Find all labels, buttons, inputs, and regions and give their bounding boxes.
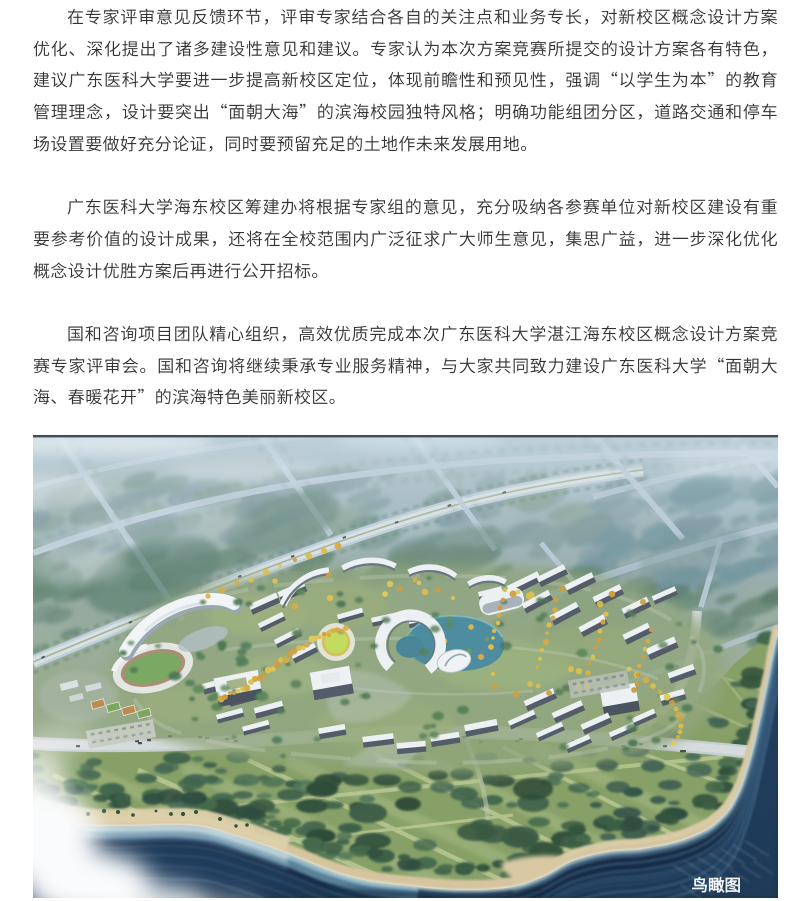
svg-text:鸟瞰图: 鸟瞰图 xyxy=(692,872,742,896)
